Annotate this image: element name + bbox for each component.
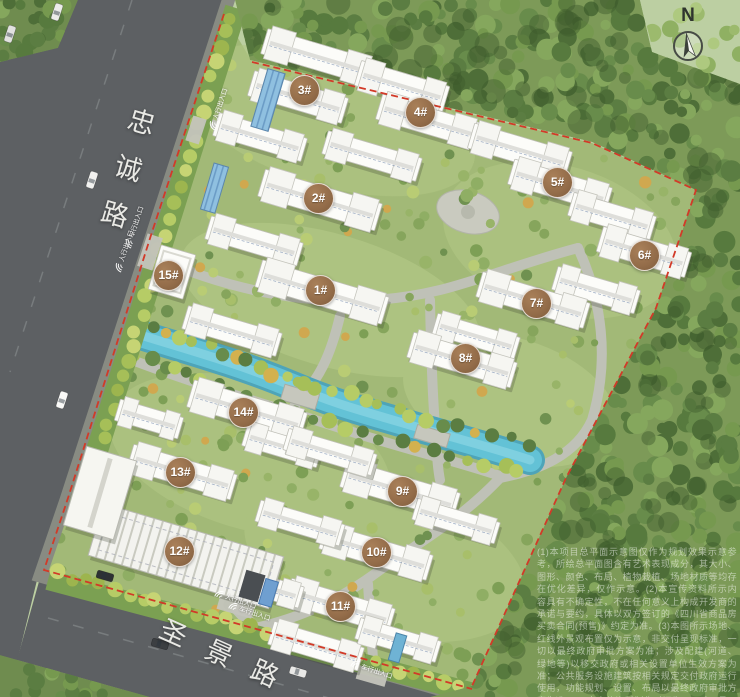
building-badge-9: 9# — [387, 476, 418, 507]
north-label: N — [664, 6, 712, 26]
building-badge-7: 7# — [521, 288, 552, 319]
building-badge-6: 6# — [629, 240, 660, 271]
building-badge-2: 2# — [303, 183, 334, 214]
building-badge-11: 11# — [325, 591, 356, 622]
signal-icon — [228, 600, 239, 611]
site-plan: 忠诚路 圣景路 1# 2# 3# 4# 5# 6# 7# 8# 9# 10# 1… — [0, 0, 740, 697]
building-badge-3: 3# — [289, 75, 320, 106]
building-badge-1: 1# — [305, 275, 336, 306]
building-badge-5: 5# — [542, 167, 573, 198]
compass-icon — [670, 28, 706, 64]
signal-icon — [214, 588, 225, 599]
building-badge-14: 14# — [228, 397, 259, 428]
building-badge-10: 10# — [361, 537, 392, 568]
building-badge-12: 12# — [164, 536, 195, 567]
disclaimer-text: (1)本项目总平面示意图仅作为规划效果示意参考，所绘总平面图含有艺术表现成分，其… — [537, 546, 737, 697]
building-badge-13: 13# — [165, 457, 196, 488]
north-arrow: N — [664, 6, 712, 64]
building-badge-15: 15# — [153, 260, 184, 291]
building-badge-4: 4# — [405, 97, 436, 128]
signal-icon — [350, 658, 361, 669]
building-badge-8: 8# — [450, 343, 481, 374]
